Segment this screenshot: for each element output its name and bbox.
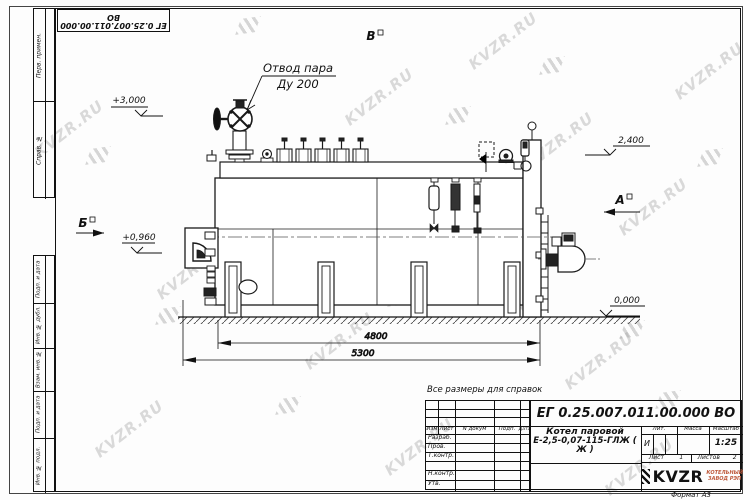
callout-line1: Отвод пара (263, 61, 333, 75)
top-hatches (277, 138, 368, 162)
kvzr-logo-icon (641, 469, 650, 484)
manhole (239, 280, 257, 294)
callout-steam-outlet: Отвод пара Ду 200 (247, 61, 336, 110)
lit-value: И (641, 434, 653, 454)
elevation-0000: 0,000 (600, 296, 645, 316)
massa-label: Масса (677, 426, 709, 434)
product-name-line2: Е-2,5-0,07-115-ГЛЖ ( Ж ) (529, 437, 641, 455)
elevation-3000: +3,000 (111, 96, 163, 116)
logo-subtitle-line2: ЗАВОД РЭП (706, 477, 743, 483)
sheet-cell: Лист 1 (641, 454, 691, 462)
col-data: Дата (520, 426, 529, 434)
scale-value: 1:25 (709, 434, 743, 454)
sheets-label: Листов (697, 455, 719, 461)
kvzr-logo-text: KVZR (653, 467, 704, 486)
sheets-value: 2 (733, 455, 737, 461)
row-prov: Пров. (428, 444, 445, 450)
title-block: Изм Лист N докум Подп. Дата Разраб. Пров… (425, 400, 742, 490)
row-tkontr: Т.контр. (428, 453, 454, 459)
drawing-sheet: { "stamp_top": { "doc_number": "ЕГ 0.25.… (0, 0, 750, 500)
col-izm: Изм (426, 426, 438, 434)
steam-outlet-valve (214, 100, 274, 162)
svg-text:2,400: 2,400 (618, 136, 644, 146)
doc-number: ЕГ 0.25.007.011.00.000 ВО (529, 401, 743, 426)
row-utv: Утв. (428, 481, 441, 487)
sheets-cell: Листов 2 (691, 454, 743, 462)
col-list: Лист (438, 426, 455, 434)
svg-text:0,000: 0,000 (614, 296, 640, 306)
format-label: Формат А3 (640, 491, 742, 500)
dimension-4800: 4800 (218, 320, 540, 366)
svg-text:+3,000: +3,000 (112, 96, 146, 106)
sheet-value: 1 (679, 455, 683, 461)
elevation-0960: +0,960 (122, 233, 162, 253)
row-nkontr: Н.контр. (428, 471, 455, 477)
svg-text:Б: Б (78, 216, 87, 230)
view-marker-b: Б (76, 216, 104, 237)
callout-line2: Ду 200 (276, 77, 318, 91)
dim-4800-text: 4800 (365, 332, 388, 342)
organization-cell: KVZR КОТЕЛЬНЫЙ ЗАВОД РЭП (641, 462, 743, 491)
elevation-2400: 2,400 (585, 136, 650, 155)
valve-handwheel (214, 108, 221, 130)
view-marker-v: В (366, 29, 383, 43)
masshtab-label: Масштаб (709, 426, 743, 434)
svg-text:+0,960: +0,960 (122, 233, 156, 243)
row-razrab: Разраб. (428, 435, 452, 441)
svg-text:А: А (614, 193, 624, 207)
feed-pump (538, 233, 600, 272)
sheet-label: Лист (649, 455, 664, 461)
lit-label: Лит. (641, 426, 677, 434)
dim-5300-text: 5300 (352, 349, 375, 359)
col-podp: Подп. (494, 426, 520, 434)
view-marker-a: А (604, 193, 640, 216)
col-ndoc: N докум (455, 426, 494, 434)
reference-note: Все размеры для справок (427, 386, 542, 395)
svg-text:В: В (366, 29, 375, 43)
ground-line (178, 317, 640, 324)
